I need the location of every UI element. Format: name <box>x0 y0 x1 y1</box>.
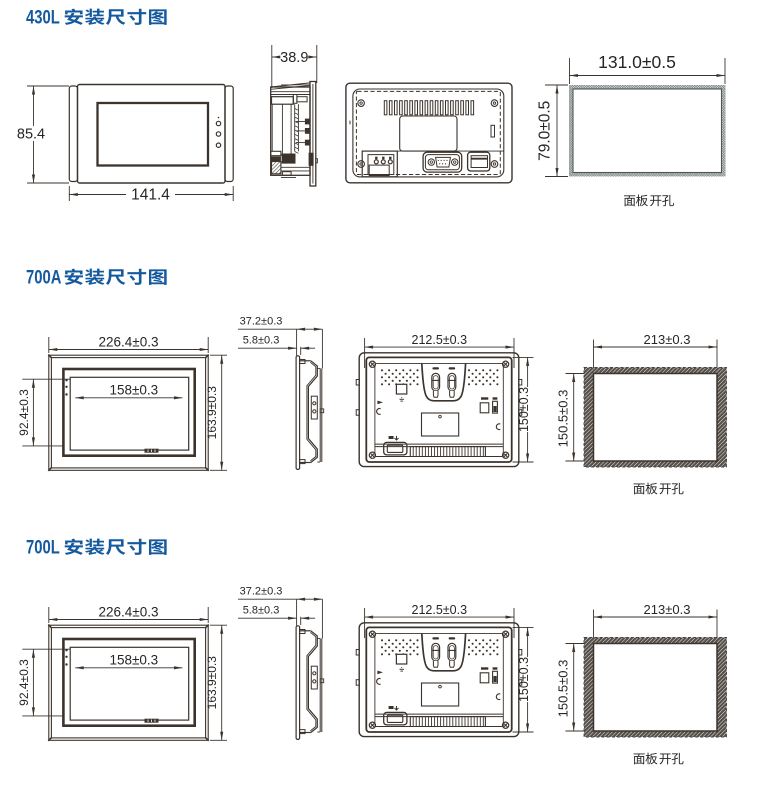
svg-text:700L: 700L <box>26 537 60 558</box>
svg-text:141.4: 141.4 <box>131 187 170 204</box>
svg-text:213±0.3: 213±0.3 <box>644 332 691 347</box>
svg-text:150.5±0.3: 150.5±0.3 <box>556 390 571 448</box>
svg-text:131.0±0.5: 131.0±0.5 <box>598 52 676 72</box>
svg-text:5.8±0.3: 5.8±0.3 <box>243 604 280 616</box>
svg-text:163.9±0.3: 163.9±0.3 <box>205 656 219 710</box>
svg-text:212.5±0.3: 212.5±0.3 <box>412 603 468 617</box>
svg-text:5.8±0.3: 5.8±0.3 <box>243 334 280 346</box>
svg-text:85.4: 85.4 <box>17 127 45 143</box>
svg-text:158±0.3: 158±0.3 <box>109 383 158 398</box>
svg-text:92.4±0.3: 92.4±0.3 <box>17 659 31 706</box>
svg-text:158±0.3: 158±0.3 <box>109 653 158 668</box>
svg-text:212.5±0.3: 212.5±0.3 <box>412 333 468 347</box>
svg-text:700A: 700A <box>26 267 61 288</box>
svg-text:150.5±0.3: 150.5±0.3 <box>556 660 571 718</box>
svg-text:163.9±0.3: 163.9±0.3 <box>205 386 219 440</box>
svg-text:37.2±0.3: 37.2±0.3 <box>240 585 283 597</box>
svg-text:38.9: 38.9 <box>280 50 308 66</box>
svg-text:226.4±0.3: 226.4±0.3 <box>99 334 159 349</box>
svg-text:226.4±0.3: 226.4±0.3 <box>99 604 159 619</box>
svg-text:430L: 430L <box>26 7 60 28</box>
svg-text:92.4±0.3: 92.4±0.3 <box>17 389 31 436</box>
svg-text:150±0.3: 150±0.3 <box>517 387 531 432</box>
svg-text:213±0.3: 213±0.3 <box>644 602 691 617</box>
svg-text:37.2±0.3: 37.2±0.3 <box>240 315 283 327</box>
svg-text:150±0.3: 150±0.3 <box>517 657 531 702</box>
svg-text:79.0±0.5: 79.0±0.5 <box>537 101 554 161</box>
